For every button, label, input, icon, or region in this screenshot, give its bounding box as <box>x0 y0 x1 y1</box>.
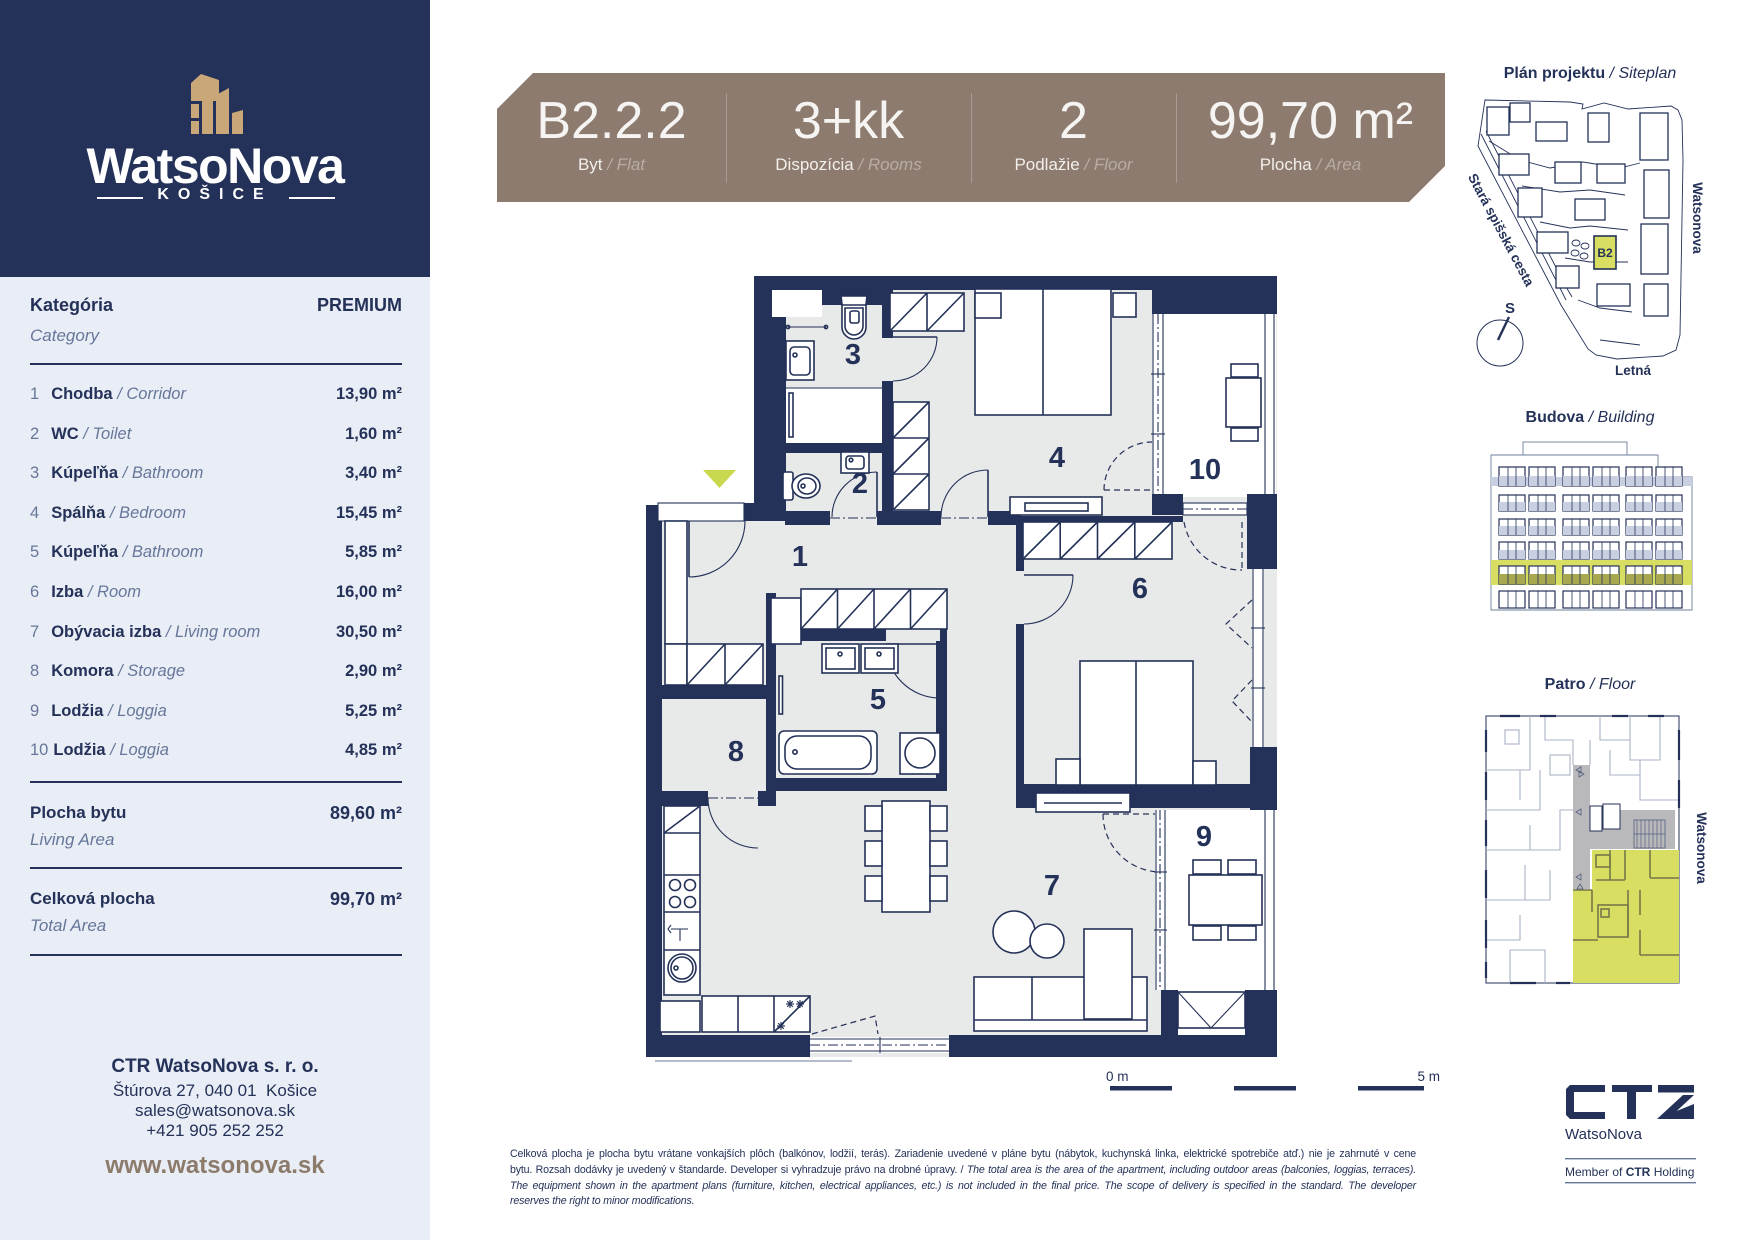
svg-text:8: 8 <box>728 736 744 768</box>
svg-text:1: 1 <box>792 541 808 573</box>
svg-text:Member of CTR Holding: Member of CTR Holding <box>1565 1165 1694 1179</box>
svg-text:S: S <box>1505 300 1515 317</box>
svg-text:9: 9 <box>1196 821 1212 853</box>
svg-text:4: 4 <box>1049 442 1065 474</box>
svg-text:Letná: Letná <box>1615 363 1651 378</box>
svg-text:Watsonova: Watsonova <box>1694 812 1709 884</box>
svg-text:5: 5 <box>870 684 886 716</box>
svg-text:0 m: 0 m <box>1106 1069 1129 1084</box>
svg-text:3: 3 <box>845 339 861 371</box>
svg-text:5 m: 5 m <box>1417 1069 1440 1084</box>
svg-text:B2: B2 <box>1597 246 1613 260</box>
svg-text:10: 10 <box>1189 454 1221 486</box>
svg-text:WatsoNova: WatsoNova <box>1565 1126 1643 1143</box>
svg-text:7: 7 <box>1044 870 1060 902</box>
svg-text:2: 2 <box>852 468 868 500</box>
svg-text:6: 6 <box>1132 573 1148 605</box>
svg-text:Watsonova: Watsonova <box>1690 182 1705 254</box>
